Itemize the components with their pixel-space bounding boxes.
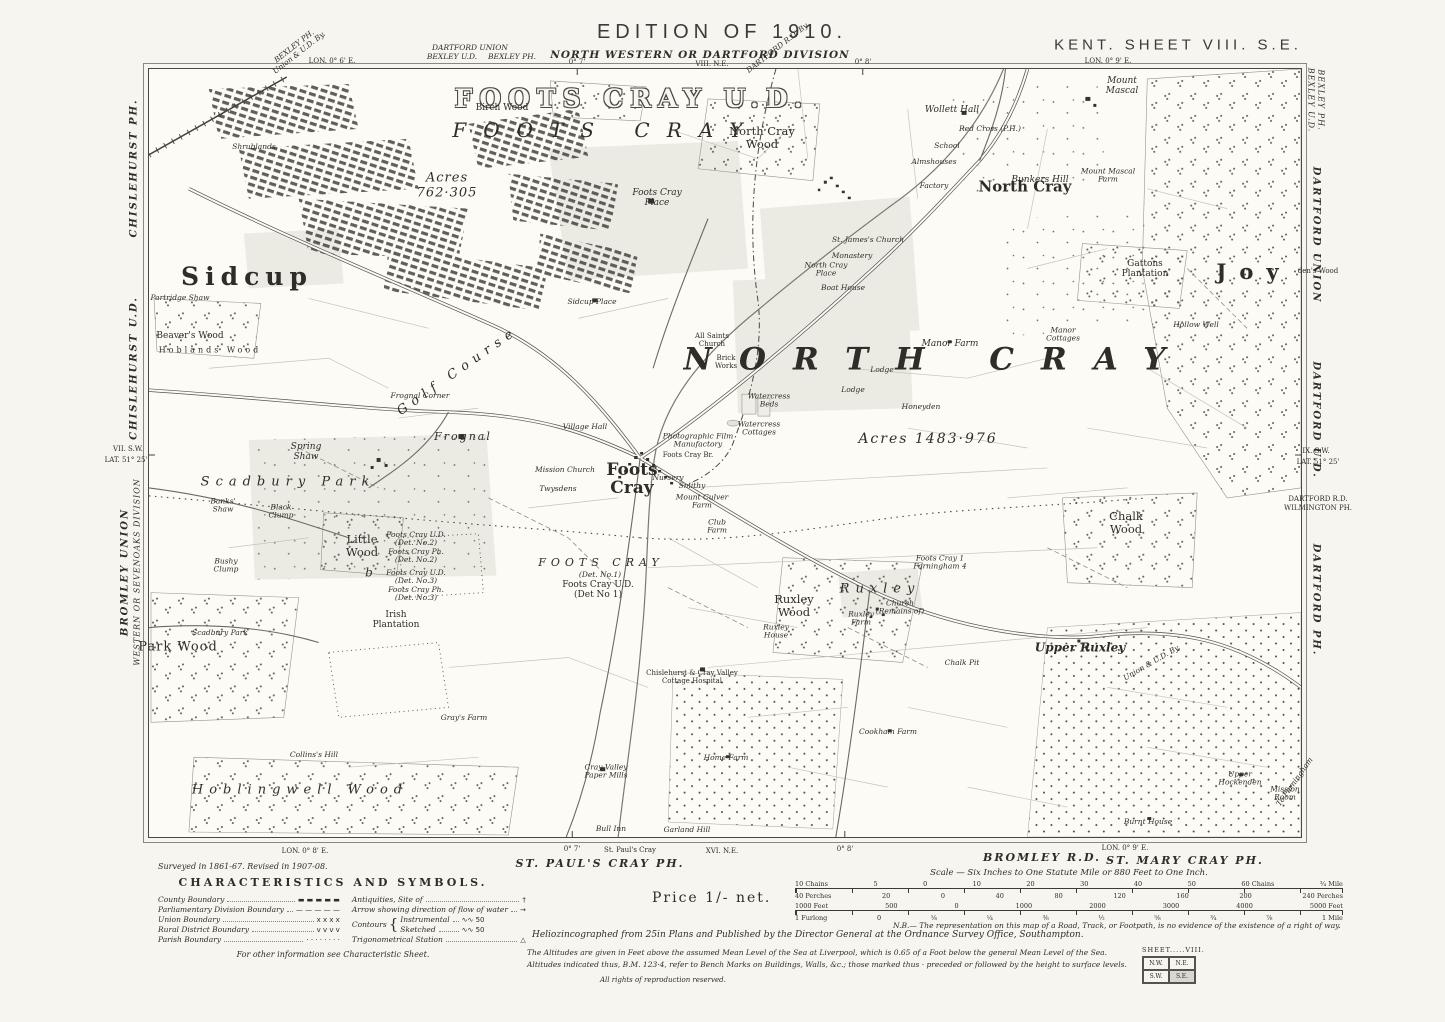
legend-footnote: For other information see Characteristic… <box>158 950 508 959</box>
legend-label: Parish Boundary <box>158 935 221 944</box>
legend-row: County Boundary ▬ ▬ ▬ ▬ ▬ <box>158 894 340 904</box>
scale-tick: 160 <box>1176 893 1188 900</box>
scale-tick: 0 <box>955 903 959 910</box>
legend-label: Antiquities, Site of <box>352 895 423 904</box>
scale-bar-feet-furlongs: 1000 Feet500010002000300040005000 Feet 1… <box>795 903 1343 922</box>
scale-ticks-feet: 1000 Feet500010002000300040005000 Feet <box>795 903 1343 910</box>
map-label: BEXLEY U.D. <box>1306 68 1315 133</box>
contour-sketched-symbol: ∿∿ 50 <box>462 926 485 934</box>
note-heliozincographed: Heliozincographed from 25in Plans and Pu… <box>532 930 1084 940</box>
map-label: LAT. 51° 25' <box>1297 459 1340 467</box>
legend-label: Rural District Boundary <box>158 925 249 934</box>
scale-tick: 200 <box>1239 893 1251 900</box>
map-label: WESTERN OR SEVENOAKS DIVISION <box>134 478 143 665</box>
legend-leader <box>453 921 459 922</box>
map-label: BEXLEY PH. <box>488 53 536 61</box>
union-boundary-symbol: x x x x <box>317 916 340 924</box>
note-rights-of-way: N.B.— The representation on this map of … <box>893 921 1445 930</box>
legend-right-column: Antiquities, Site of † Arrow showing dir… <box>352 894 526 944</box>
legend-leader <box>439 931 459 932</box>
county-boundary-symbol: ▬ ▬ ▬ ▬ ▬ <box>298 896 340 904</box>
sheet-title: KENT. SHEET VIII. S.E. <box>1054 38 1302 55</box>
legend-contours-group: Contours { Instrumental ∿∿ 50 Sketched ∿… <box>352 914 526 934</box>
map-label: 0° 7' <box>564 846 581 854</box>
scale-bar-chains-perches: 10 Chains50102030405060 Chains¾ Mile 40 … <box>795 881 1343 900</box>
legend-left-column: County Boundary ▬ ▬ ▬ ▬ ▬ Parliamentary … <box>158 894 340 944</box>
scale-tick: 60 Chains <box>1241 881 1274 888</box>
legend-label: Trigonometrical Station <box>352 935 443 944</box>
note-reproduction-reserved: All rights of reproduction reserved. <box>600 976 726 984</box>
legend-leader <box>287 911 293 912</box>
map-label: DARTFORD U.D. <box>1310 361 1321 478</box>
price-label: Price 1/- net. <box>652 890 771 906</box>
map-label: BEXLEY U.D. <box>427 53 477 61</box>
trig-station-symbol: △ <box>520 936 525 944</box>
map-label: CHISLEHURST U.D. <box>128 296 139 440</box>
sheet-index-cell-ne: N.E. <box>1169 957 1195 970</box>
sheet-index-cell-sw: S.W. <box>1143 970 1169 983</box>
scale-tick: 2000 <box>1089 903 1106 910</box>
sheet-index-cell-nw: N.W. <box>1143 957 1169 970</box>
scale-tick: 5000 Feet <box>1310 903 1343 910</box>
sheet-index-title: SHEET.....VIII. <box>1142 946 1205 954</box>
legend-contours-items: Instrumental ∿∿ 50 Sketched ∿∿ 50 <box>400 914 484 934</box>
legend: Surveyed in 1861-67. Revised in 1907-08.… <box>158 862 508 959</box>
legend-label: Instrumental <box>400 915 449 924</box>
map-label: LON. 0° 6' E. <box>309 58 356 66</box>
scale-tick: 0 <box>877 915 881 922</box>
map-label: LAT. 51° 25' <box>105 457 148 465</box>
brace-glyph: { <box>389 915 399 933</box>
legend-label: Arrow showing direction of flow of water <box>352 905 508 914</box>
sheet-index-grid: N.W. N.E. S.W. S.E. <box>1142 956 1196 984</box>
map-label: DARTFORD R.D. By. <box>745 21 811 75</box>
map-canvas <box>149 69 1301 837</box>
map-label: BEXLEY PH. <box>1316 69 1325 130</box>
legend-label: Union Boundary <box>158 915 220 924</box>
legend-label: Contours <box>352 920 387 929</box>
map-sheet-page: EDITION OF 1910.KENT. SHEET VIII. S.E.NO… <box>0 0 1445 1022</box>
division-title: NORTH WESTERN OR DARTFORD DIVISION <box>550 50 849 62</box>
map-label: LON. 0° 9' E. <box>1102 845 1149 853</box>
scale-tick: 1000 Feet <box>795 903 828 910</box>
legend-row: Instrumental ∿∿ 50 <box>400 914 484 924</box>
legend-row: Antiquities, Site of † <box>352 894 526 904</box>
legend-leader <box>426 901 520 902</box>
sheet-index: SHEET.....VIII. N.W. N.E. S.W. S.E. <box>1142 946 1205 984</box>
legend-row: Parliamentary Division Boundary — — — — … <box>158 904 340 914</box>
legend-leader <box>511 911 517 912</box>
scale-tick: 40 <box>1134 881 1142 888</box>
map-label: CHISLEHURST PH. <box>128 98 139 237</box>
scale-tick: 80 <box>1054 893 1062 900</box>
map-frame <box>148 68 1302 838</box>
parliamentary-boundary-symbol: — — — — — <box>296 906 340 914</box>
map-label: St. Paul's Cray <box>604 847 656 855</box>
scale-tick: 5 <box>873 881 877 888</box>
map-label: ST. MARY CRAY PH. <box>1106 855 1264 867</box>
note-altitudes-datum: The Altitudes are given in Feet above th… <box>527 948 1107 957</box>
scale-tick: 1 Furlong <box>795 915 827 922</box>
scale-section: Scale — Six Inches to One Statute Mile o… <box>795 868 1343 923</box>
legend-row: Union Boundary x x x x <box>158 914 340 924</box>
scale-tick: 240 Perches <box>1302 893 1343 900</box>
map-label: DARTFORD PH. <box>1310 544 1321 657</box>
map-label: 0° 8' <box>837 846 854 854</box>
map-label: DARTFORD UNION <box>432 44 508 52</box>
contour-instrumental-symbol: ∿∿ 50 <box>462 916 485 924</box>
scale-tick: 50 <box>1188 881 1196 888</box>
map-label: BROMLEY UNION <box>119 508 130 636</box>
legend-row: Arrow showing direction of flow of water… <box>352 904 526 914</box>
scale-tick: 3000 <box>1163 903 1180 910</box>
water-flow-arrow-symbol: → <box>520 906 526 914</box>
antiquities-symbol: † <box>522 896 526 904</box>
legend-label: Sketched <box>400 925 435 934</box>
adjoining-sheet-south: XVI. N.E. <box>706 848 739 856</box>
survey-note: Surveyed in 1861-67. Revised in 1907-08. <box>158 862 508 871</box>
legend-label: County Boundary <box>158 895 224 904</box>
scale-ticks-chains: 10 Chains50102030405060 Chains¾ Mile <box>795 881 1343 888</box>
legend-row: Rural District Boundary v v v v <box>158 924 340 934</box>
map-label: LON. 0° 9' E. <box>1085 58 1132 66</box>
scale-caption: Scale — Six Inches to One Statute Mile o… <box>795 868 1343 878</box>
map-label: ST. PAUL'S CRAY PH. <box>516 858 685 870</box>
map-label: DARTFORD UNION <box>1310 167 1321 304</box>
scale-ticks-perches: 40 Perches2004080120160200240 Perches <box>795 893 1343 900</box>
scale-tick: 30 <box>1080 881 1088 888</box>
legend-row: Sketched ∿∿ 50 <box>400 924 484 934</box>
scale-tick: 500 <box>885 903 897 910</box>
scale-tick: 120 <box>1113 893 1125 900</box>
legend-leader <box>224 941 303 942</box>
edition-title: EDITION OF 1910. <box>597 21 847 43</box>
scale-tick: ¾ Mile <box>1320 881 1343 888</box>
scale-tick: 10 <box>973 881 981 888</box>
legend-leader <box>227 901 295 902</box>
map-label: LON. 0° 8' E. <box>282 848 329 856</box>
legend-title: CHARACTERISTICS AND SYMBOLS. <box>158 876 508 889</box>
scale-tick: 1000 <box>1016 903 1033 910</box>
scale-tick: 20 <box>1026 881 1034 888</box>
legend-leader <box>446 941 518 942</box>
rural-district-boundary-symbol: v v v v <box>317 926 340 934</box>
legend-label: Parliamentary Division Boundary <box>158 905 284 914</box>
sheet-index-cell-se: S.E. <box>1169 970 1195 983</box>
map-label: 0° 8' <box>855 59 872 67</box>
scale-tick: 10 Chains <box>795 881 828 888</box>
scale-tick: 40 Perches <box>795 893 831 900</box>
legend-row: Trigonometrical Station △ <box>352 934 526 944</box>
legend-row: Parish Boundary · · · · · · · · <box>158 934 340 944</box>
scale-tick: 40 <box>996 893 1004 900</box>
legend-leader <box>252 931 314 932</box>
scale-tick: 0 <box>923 881 927 888</box>
map-label: BROMLEY R.D. <box>983 852 1101 864</box>
scale-tick: 20 <box>882 893 890 900</box>
scale-tick: 0 <box>941 893 945 900</box>
parish-boundary-symbol: · · · · · · · · <box>306 936 339 944</box>
legend-leader <box>223 921 314 922</box>
map-label: IX. S.W. <box>1302 448 1329 456</box>
map-label: VII. S.W. <box>113 446 143 454</box>
scale-tick: 4000 <box>1236 903 1253 910</box>
map-label: 0° 7' <box>569 59 586 67</box>
note-bench-marks: Altitudes indicated thus, B.M. 123·4, re… <box>527 960 1127 969</box>
map-label: den's Wood <box>1298 268 1339 276</box>
